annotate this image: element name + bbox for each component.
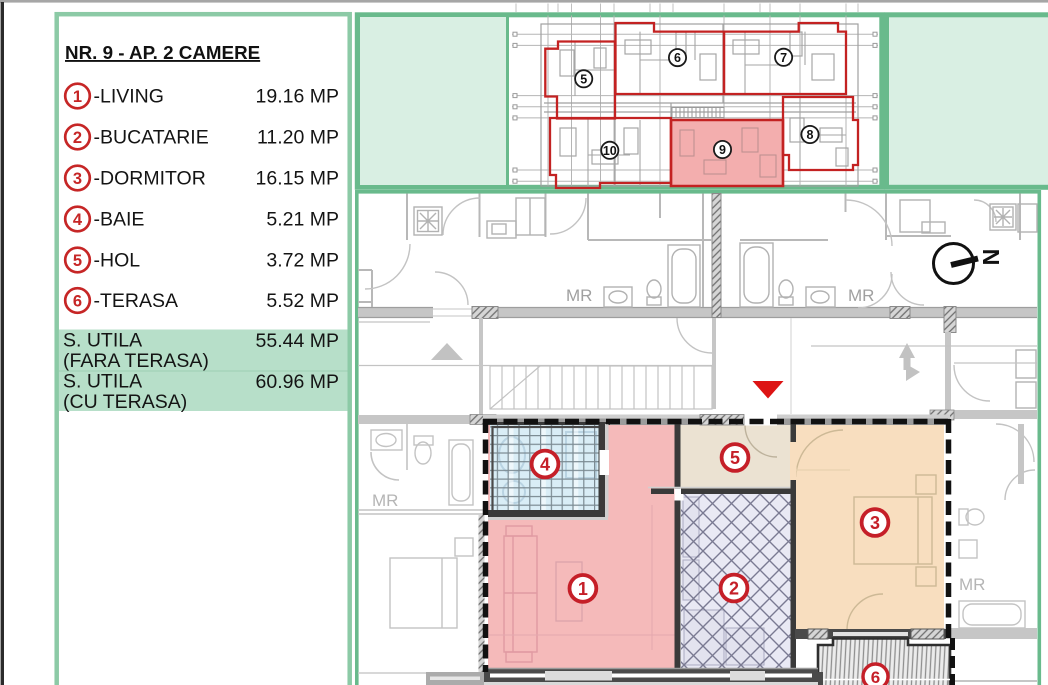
svg-text:NR. 9 - AP. 2 CAMERE: NR. 9 - AP. 2 CAMERE [65, 42, 260, 63]
svg-text:19.16 MP: 19.16 MP [256, 86, 339, 108]
svg-text:10: 10 [603, 144, 617, 158]
svg-text:5.52 MP: 5.52 MP [266, 290, 339, 312]
svg-text:(FARA TERASA): (FARA TERASA) [63, 350, 209, 372]
svg-text:5: 5 [73, 252, 82, 270]
svg-text:6: 6 [674, 51, 681, 65]
svg-text:6: 6 [871, 668, 880, 685]
svg-text:-BUCATARIE: -BUCATARIE [94, 127, 209, 149]
svg-text:-TERASA: -TERASA [94, 290, 179, 312]
svg-text:60.96 MP: 60.96 MP [256, 371, 339, 393]
svg-text:2: 2 [73, 129, 82, 147]
svg-text:3.72 MP: 3.72 MP [266, 250, 339, 272]
svg-text:-LIVING: -LIVING [94, 86, 164, 108]
svg-text:MR: MR [566, 286, 592, 305]
svg-text:-DORMITOR: -DORMITOR [94, 168, 206, 190]
svg-text:11.20 MP: 11.20 MP [257, 127, 339, 149]
svg-text:MR: MR [959, 575, 985, 594]
svg-text:55.44 MP: 55.44 MP [256, 330, 339, 352]
svg-text:4: 4 [73, 211, 83, 229]
svg-text:MR: MR [372, 491, 398, 510]
svg-text:16.15 MP: 16.15 MP [256, 168, 339, 190]
svg-text:6: 6 [73, 293, 82, 311]
svg-text:8: 8 [807, 128, 814, 142]
svg-text:4: 4 [540, 455, 550, 475]
svg-text:2: 2 [729, 579, 739, 599]
svg-text:5: 5 [730, 448, 740, 468]
svg-text:3: 3 [73, 170, 82, 188]
svg-text:(CU TERASA): (CU TERASA) [63, 391, 187, 413]
svg-text:1: 1 [578, 579, 588, 599]
svg-text:S. UTILA: S. UTILA [63, 371, 142, 393]
svg-text:N: N [978, 249, 1004, 266]
svg-text:5: 5 [580, 72, 587, 86]
svg-text:1: 1 [73, 88, 82, 106]
svg-text:9: 9 [719, 143, 726, 157]
svg-text:-HOL: -HOL [94, 250, 141, 272]
svg-text:5.21 MP: 5.21 MP [266, 209, 339, 231]
svg-text:MR: MR [848, 286, 874, 305]
svg-text:S. UTILA: S. UTILA [63, 330, 142, 352]
svg-text:3: 3 [870, 513, 880, 533]
svg-text:7: 7 [780, 51, 787, 65]
svg-text:-BAIE: -BAIE [94, 209, 145, 231]
